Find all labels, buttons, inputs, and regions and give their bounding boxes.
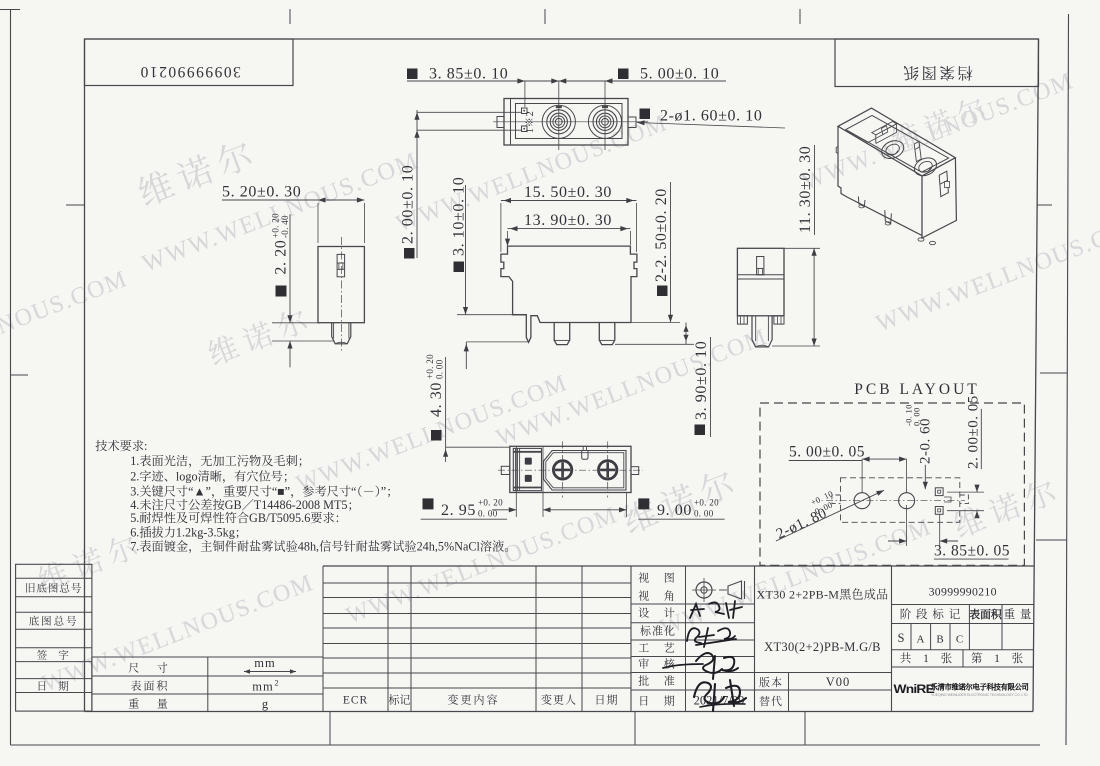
svg-text:旧底图总号: 旧底图总号: [25, 582, 83, 595]
svg-text:签 字: 签 字: [37, 650, 71, 662]
svg-text:5.耐焊性及可焊性符合GB/T5095.6要求：: 5.耐焊性及可焊性符合GB/T5095.6要求：: [130, 510, 347, 525]
svg-text:2-2. 50±0. 20: 2-2. 50±0. 20: [653, 188, 670, 282]
svg-text:3. 85±0. 10: 3. 85±0. 10: [429, 66, 508, 83]
svg-text:第 1 张: 第 1 张: [971, 652, 1025, 665]
svg-text:3. 90±0. 10: 3. 90±0. 10: [693, 341, 710, 420]
svg-text:+0. 20: +0. 20: [694, 498, 719, 508]
svg-text:YUEQING WEINUOER ELECTRONIC TE: YUEQING WEINUOER ELECTRONIC TECHNOLOGY C…: [931, 693, 1028, 697]
svg-text:3. 10±0. 10: 3. 10±0. 10: [451, 177, 468, 256]
svg-text:工 艺: 工 艺: [638, 642, 678, 655]
svg-text:0. 00: 0. 00: [478, 509, 498, 519]
svg-text:2. 00±0. 10: 2. 00±0. 10: [400, 165, 417, 244]
svg-text:替代: 替代: [759, 694, 783, 708]
svg-text:审 核: 审 核: [638, 657, 678, 671]
svg-text:B: B: [936, 634, 943, 646]
svg-text:重 量: 重 量: [1004, 607, 1033, 621]
svg-text:表面积: 表面积: [969, 607, 1003, 622]
svg-text:2. 20: 2. 20: [273, 240, 290, 275]
svg-text:批 准: 批 准: [638, 674, 678, 688]
svg-text:WWW.WELLNOUS.COM: WWW.WELLNOUS.COM: [873, 210, 1100, 338]
svg-text:A: A: [917, 634, 925, 646]
svg-text:标记: 标记: [389, 693, 411, 707]
svg-text:XT30 2+2PB-M黑色成品: XT30 2+2PB-M黑色成品: [757, 587, 889, 602]
svg-text:-0. 40: -0. 40: [280, 215, 290, 238]
svg-text:档案图纸: 档案图纸: [901, 64, 973, 82]
svg-text:设 计: 设 计: [638, 606, 678, 620]
svg-text:视 图: 视 图: [638, 572, 678, 585]
svg-text:4. 30: 4. 30: [428, 382, 445, 417]
svg-text:2.字迹、logo清晰，有穴位号；: 2.字迹、logo清晰，有穴位号；: [130, 468, 295, 483]
svg-text:4.未注尺寸公差按GB／T14486-2008 MT5；: 4.未注尺寸公差按GB／T14486-2008 MT5；: [130, 497, 360, 512]
svg-text:6.插拔力1.2kg-3.5kg；: 6.插拔力1.2kg-3.5kg；: [130, 524, 247, 539]
svg-text:g: g: [262, 697, 269, 711]
svg-text:ECR: ECR: [343, 695, 368, 707]
svg-text:0. 00: 0. 00: [694, 509, 714, 519]
svg-text:2. 95: 2. 95: [441, 502, 476, 519]
svg-text:1.表面光洁，无加工污物及毛刺；: 1.表面光洁，无加工污物及毛刺；: [130, 453, 310, 468]
svg-text:阶 段 标 记: 阶 段 标 记: [900, 607, 962, 621]
svg-text:变更人: 变更人: [541, 693, 577, 707]
svg-text:+0. 20: +0. 20: [478, 498, 503, 508]
svg-text:日期: 日期: [595, 693, 619, 707]
svg-text:重 量: 重 量: [128, 697, 172, 711]
svg-text:3. 85±0. 05: 3. 85±0. 05: [934, 543, 1010, 560]
svg-text:维诺尔: 维诺尔: [946, 464, 1069, 547]
svg-text:30999990210: 30999990210: [929, 585, 997, 599]
svg-text:版本: 版本: [759, 675, 783, 689]
svg-text:C: C: [956, 634, 963, 646]
svg-text:底图总号: 底图总号: [29, 615, 79, 628]
svg-text:0. 00: 0. 00: [435, 359, 445, 379]
svg-text:日 期: 日 期: [37, 680, 71, 693]
svg-text:PCB LAYOUT: PCB LAYOUT: [854, 381, 979, 398]
svg-text:+0. 20: +0. 20: [271, 213, 281, 238]
svg-text:标准化: 标准化: [640, 624, 676, 638]
svg-text:日 期: 日 期: [638, 694, 678, 708]
svg-text:9. 00: 9. 00: [657, 502, 692, 519]
svg-text:V00: V00: [826, 675, 851, 689]
svg-text:XT30(2+2)PB-M.G/B: XT30(2+2)PB-M.G/B: [764, 640, 881, 654]
svg-text:技术要求:: 技术要求:: [95, 438, 147, 453]
svg-text:13. 90±0. 30: 13. 90±0. 30: [524, 212, 612, 229]
svg-text:WniRE: WniRE: [893, 682, 934, 696]
svg-text:2-ø1. 60±0. 10: 2-ø1. 60±0. 10: [660, 108, 763, 125]
svg-text:0. 00: 0. 00: [912, 408, 922, 427]
svg-text:5. 00±0. 10: 5. 00±0. 10: [640, 66, 719, 83]
svg-text:乐清市维诺尔电子科技有限公司: 乐清市维诺尔电子科技有限公司: [931, 683, 1029, 693]
svg-text:尺 寸: 尺 寸: [128, 661, 172, 675]
svg-text:表面积: 表面积: [131, 679, 170, 693]
svg-text:+0. 20: +0. 20: [425, 354, 435, 379]
svg-text:维诺尔: 维诺尔: [130, 125, 266, 217]
svg-text:变更内容: 变更内容: [448, 693, 500, 707]
svg-text:WWW.WELLNOUS.COM: WWW.WELLNOUS.COM: [0, 266, 131, 394]
svg-text:7.表面镀金，主铜件耐盐雾试验48h,信号针耐盐雾试验24h: 7.表面镀金，主铜件耐盐雾试验48h,信号针耐盐雾试验24h,5%NaCl溶液。: [130, 539, 516, 554]
svg-text:15. 50±0. 30: 15. 50±0. 30: [524, 184, 612, 201]
svg-text:视 角: 视 角: [638, 589, 678, 603]
svg-text:5. 00±0. 05: 5. 00±0. 05: [789, 444, 865, 461]
svg-text:mm: mm: [254, 656, 275, 670]
svg-text:mm: mm: [252, 680, 273, 694]
svg-text:5. 20±0. 30: 5. 20±0. 30: [222, 184, 301, 201]
svg-text:共 1 张: 共 1 张: [900, 651, 954, 665]
svg-text:S: S: [898, 631, 905, 645]
svg-text:2. 00±0. 05: 2. 00±0. 05: [965, 395, 981, 469]
svg-text:3.关键尺寸“▲”，重要尺寸“■”，参考尺寸“（－）”；: 3.关键尺寸“▲”，重要尺寸“■”，参考尺寸“（－）”；: [130, 484, 398, 499]
svg-text:WWW.WELLNOUS.COM: WWW.WELLNOUS.COM: [799, 68, 1078, 196]
svg-text:2: 2: [275, 679, 279, 688]
svg-text:11. 30±0. 30: 11. 30±0. 30: [797, 146, 814, 233]
svg-text:30999990210: 30999990210: [139, 63, 241, 80]
svg-text:维诺尔: 维诺尔: [201, 293, 320, 374]
